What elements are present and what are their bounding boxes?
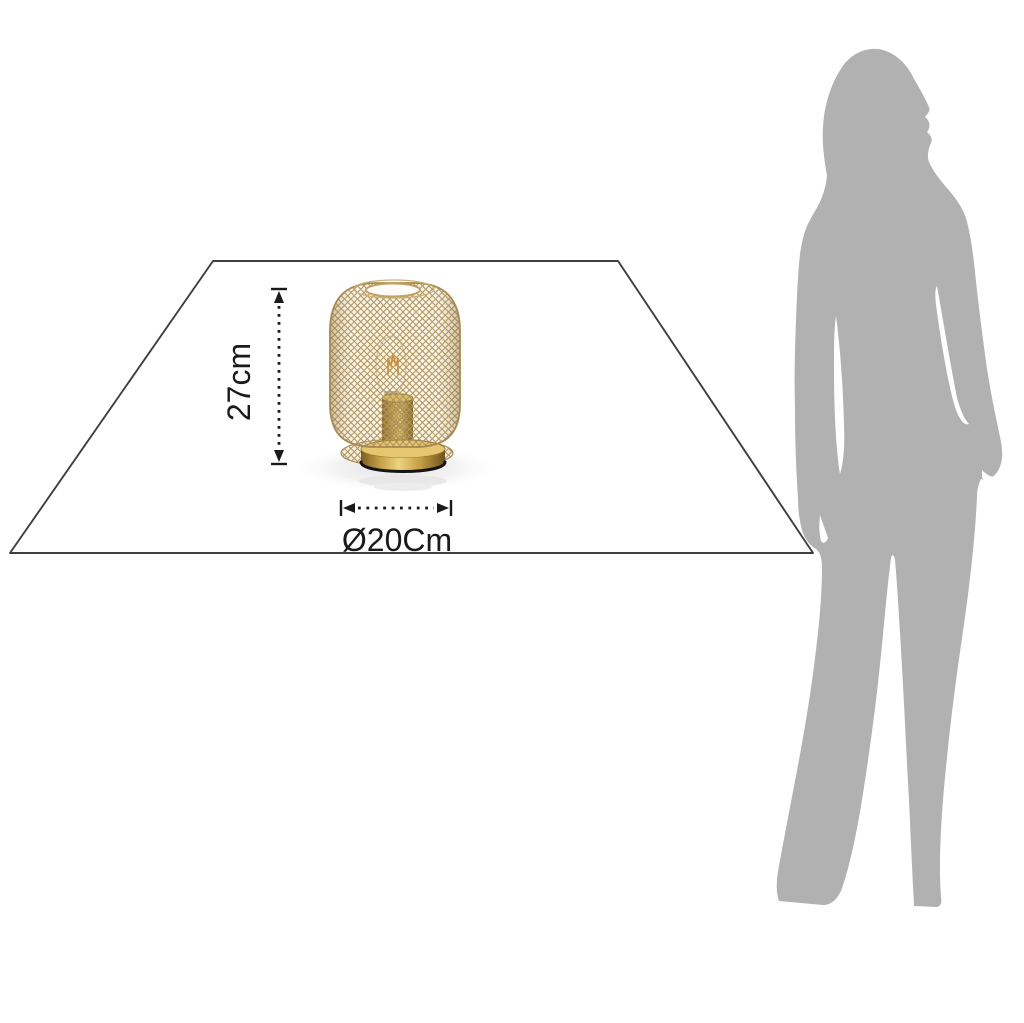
- diameter-label: Ø20Cm: [342, 522, 452, 558]
- mesh-cage-shading: [330, 283, 460, 447]
- woman-silhouette: [777, 49, 1002, 907]
- product-dimension-diagram: 27cm Ø20Cm: [0, 0, 1024, 1023]
- base-reflection-soft: [374, 483, 432, 491]
- height-label: 27cm: [221, 343, 257, 421]
- silhouette-body: [777, 49, 1002, 907]
- cage-top-opening: [366, 284, 420, 297]
